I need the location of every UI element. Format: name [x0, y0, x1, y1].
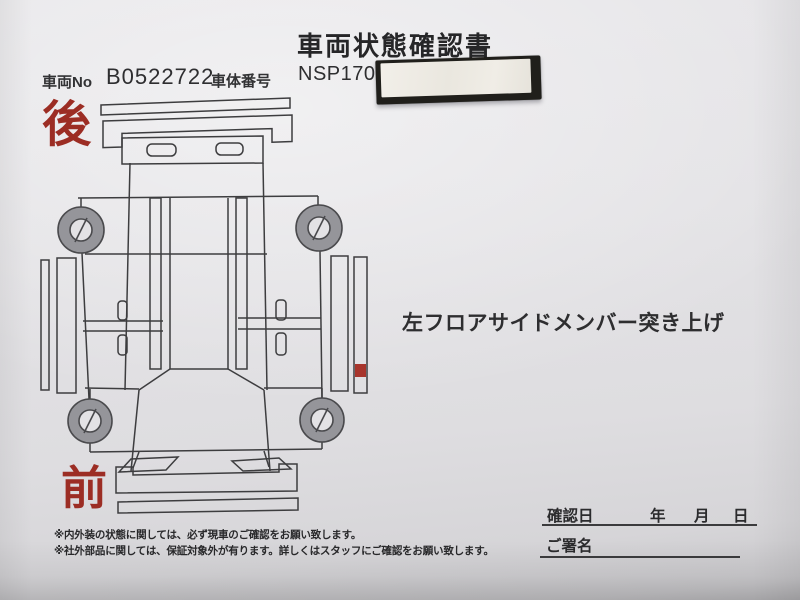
confirm-date-underline — [542, 524, 757, 526]
confirm-date-label: 確認日 — [547, 504, 594, 526]
wheel-well-line-left — [85, 388, 139, 389]
sill-strip-left-wide — [57, 258, 76, 393]
front-transition-left — [139, 369, 170, 390]
rear-wheel-left — [58, 207, 104, 253]
jack-tab-right-lower — [276, 333, 286, 355]
damage-mark — [355, 364, 366, 377]
headlight-left — [119, 457, 178, 472]
rocker-line-right — [320, 251, 322, 399]
confirm-month-label: 月 — [694, 504, 710, 526]
front-axle-line — [90, 449, 322, 452]
car-underbody-diagram — [0, 0, 800, 600]
rear-panel-slot-right — [216, 143, 243, 155]
jack-tab-left-upper — [118, 301, 127, 320]
signature-label: ご署名 — [546, 534, 593, 556]
floor-side-member-left — [150, 198, 161, 369]
diagram-lines — [41, 98, 367, 513]
front-wheel-left — [68, 399, 112, 443]
front-bumper-outer-bar — [118, 498, 298, 513]
front-wheel-right — [300, 398, 344, 442]
rear-wheel-right — [296, 205, 342, 251]
rear-panel-slot-left — [147, 144, 176, 156]
rocker-line-left — [82, 253, 89, 399]
signature-underline — [540, 556, 740, 558]
confirm-day-label: 日 — [733, 504, 749, 526]
front-corner-left — [133, 452, 139, 468]
rear-bumper-outer-bar — [101, 98, 290, 115]
rear-axle-line — [78, 196, 318, 198]
vehicle-condition-sheet-photo: 車両状態確認書 車両No B0522722 車体番号 NSP170- 後 前 左… — [0, 0, 800, 600]
footnote-interior-exterior: ※内外装の状態に関しては、必ず現車のご確認をお願い致します。 — [54, 527, 361, 542]
sill-strip-right-wide — [331, 256, 348, 391]
wheels — [58, 205, 344, 443]
floor-side-member-right — [236, 198, 247, 369]
front-transition-right — [228, 369, 264, 390]
sill-strip-left-narrow — [41, 260, 49, 390]
confirm-year-label: 年 — [650, 504, 666, 526]
footnote-aftermarket-parts: ※社外部品に関しては、保証対象外が有ります。詳しくはスタッフにご確認をお願い致し… — [54, 543, 494, 558]
jack-tab-right-upper — [276, 300, 286, 320]
rear-panel — [122, 136, 263, 164]
